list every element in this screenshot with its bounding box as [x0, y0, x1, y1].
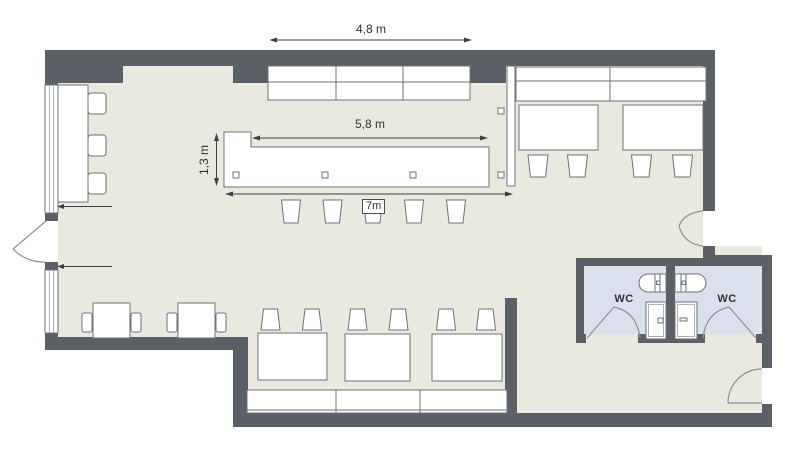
- dimension-label-bar-depth: 1,3 m: [197, 129, 211, 191]
- cafe-chair: [131, 313, 141, 332]
- dimension-bench-row: [269, 38, 472, 43]
- dimension-label-bar-total: 7m: [362, 199, 385, 214]
- cafe-table: [93, 303, 130, 338]
- left-counter: [58, 85, 88, 202]
- lounge-table: [258, 333, 327, 380]
- wc-left-door: [587, 307, 640, 338]
- entry-door-left: [13, 221, 46, 262]
- bar-support-post: [498, 172, 504, 178]
- wc-right-cabinet: [675, 302, 697, 339]
- lounge-chair: [389, 309, 408, 330]
- wc-right-door: [703, 307, 756, 338]
- lounge-chair: [348, 309, 367, 330]
- bar-stool: [447, 200, 466, 223]
- cafe-chair: [167, 313, 177, 332]
- left-counter-stool: [88, 93, 106, 114]
- exit-door-bottom-right: [728, 369, 762, 403]
- lounge-table: [345, 334, 410, 381]
- dimension-bar-depth: [214, 133, 219, 186]
- door-leaf: [729, 307, 756, 338]
- dimension-bar-inner: [252, 136, 488, 141]
- dining-chair: [528, 155, 548, 177]
- bar-support-post: [322, 172, 328, 178]
- bar-stool: [323, 200, 342, 223]
- lounge-bench: [247, 390, 507, 413]
- room-label-wc-right: WC: [711, 292, 743, 306]
- left-counter-stool: [88, 173, 106, 194]
- wc-left-cabinet: [646, 302, 666, 339]
- bench-row-left: [268, 66, 470, 100]
- door-arc: [614, 307, 640, 338]
- wc-left-sink: [639, 274, 666, 292]
- left-counter-stool: [88, 135, 106, 156]
- dining-chair: [632, 155, 652, 177]
- dining-chair: [568, 155, 588, 177]
- bar-counter: [224, 132, 489, 187]
- window-left-upper: [45, 85, 58, 213]
- door-leaf: [587, 307, 614, 338]
- dimension-label-bench-row: 4,8 m: [340, 22, 402, 36]
- dimension-label-bar-inner: 5,8 m: [339, 117, 401, 131]
- bar-support-post: [410, 172, 416, 178]
- lounge-chair: [437, 309, 456, 330]
- dining-table: [623, 105, 703, 150]
- cafe-table: [178, 303, 215, 338]
- bar-counter-return: [507, 66, 515, 186]
- bar-stool: [282, 200, 301, 223]
- lounge-chair: [477, 309, 496, 330]
- window-leader-lower: [57, 264, 112, 269]
- door-arc: [728, 369, 762, 403]
- bar-support-post: [233, 172, 239, 178]
- lounge-chair: [303, 309, 322, 330]
- bar-stool: [405, 200, 424, 223]
- window-leader-upper: [57, 204, 112, 209]
- dimension-bar-total: [225, 192, 513, 197]
- wc-right-sink: [675, 274, 706, 292]
- double-swing-door-right: [679, 211, 703, 246]
- cafe-chair: [216, 313, 226, 332]
- furniture-layer: [0, 0, 800, 474]
- door-arc: [703, 307, 729, 338]
- bar-support-post: [498, 108, 504, 114]
- lounge-table: [432, 334, 502, 381]
- lounge-chair: [261, 309, 280, 330]
- door-leaf: [13, 221, 46, 249]
- dining-table: [519, 105, 598, 150]
- room-label-wc-left: WC: [608, 292, 640, 306]
- bench-row-right: [516, 67, 706, 101]
- floor-plan: 4,8 m 5,8 m 1,3 m 7m WC WC: [0, 0, 800, 474]
- window-left-lower: [45, 270, 58, 333]
- dining-chair: [673, 155, 693, 177]
- cafe-chair: [82, 313, 92, 332]
- door-arc: [13, 249, 45, 262]
